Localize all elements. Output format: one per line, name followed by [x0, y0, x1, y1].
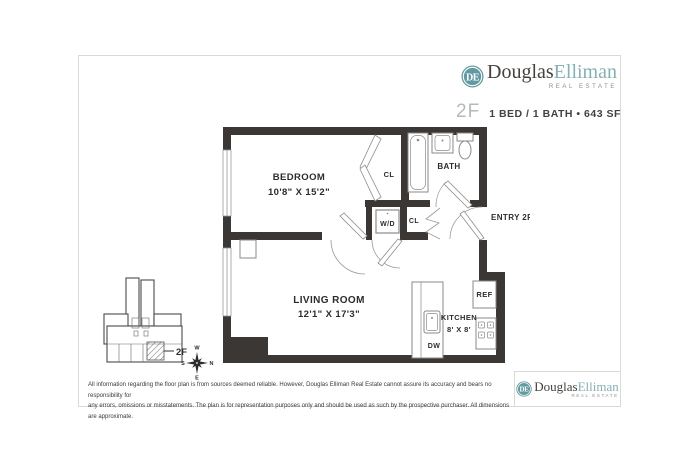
bath-label: BATH — [437, 162, 460, 171]
brand-logo: DE DouglasElliman REAL ESTATE — [452, 62, 617, 90]
fridge-label: REF — [476, 290, 492, 299]
entry-label: ENTRY 2F — [491, 213, 530, 222]
keyplan: 2F W E S N — [95, 272, 230, 380]
bath-sink — [432, 133, 453, 153]
kitchen-sink — [424, 311, 440, 333]
stove — [476, 318, 496, 349]
bedroom-dims: 10'8" X 15'2" — [268, 187, 330, 198]
kitchen-label: KITCHEN — [441, 313, 477, 322]
disclaimer-line-1: All information regarding the floor plan… — [88, 380, 518, 401]
keyplan-unit-hatch — [147, 342, 164, 360]
brand-wordmark: DouglasElliman — [487, 62, 617, 82]
footer-brand-logo: DE DouglasElliman REAL ESTATE — [516, 380, 619, 399]
brand-word2: Elliman — [578, 379, 619, 394]
hall-closet-label: CL — [409, 218, 419, 225]
bathtub — [408, 133, 428, 192]
brand-monogram-icon: DE — [461, 65, 484, 88]
compass-left: S — [181, 361, 185, 367]
bedroom-door-arc — [331, 240, 365, 274]
brand-word1: Douglas — [487, 61, 554, 83]
page: DE DouglasElliman REAL ESTATE 2F 1 BED /… — [0, 0, 700, 466]
bath-door-arc — [436, 182, 446, 207]
brand-word1: Douglas — [534, 379, 577, 394]
bedroom-closet-label: CL — [384, 170, 395, 179]
disclaimer: All information regarding the floor plan… — [88, 380, 518, 422]
bath-door-leaf — [444, 181, 472, 208]
entry-door-leaf — [460, 211, 484, 240]
footer-logo-box: DE DouglasElliman REAL ESTATE — [514, 371, 621, 407]
monogram-letters: DE — [520, 386, 530, 394]
livingroom-dims: 12'1" X 17'3" — [298, 309, 360, 320]
compass-right: N — [210, 361, 214, 367]
wd-door-leaf — [378, 239, 402, 266]
keyplan-unit-label: 2F — [176, 347, 187, 358]
keyplan-building — [104, 278, 182, 362]
bedroom-door-leaf — [340, 213, 367, 239]
unit-summary: 1 BED / 1 BATH • 643 SF — [489, 108, 621, 120]
brand-tagline: REAL ESTATE — [534, 394, 619, 399]
column-enclosure — [240, 240, 256, 258]
monogram-letters: DE — [466, 72, 480, 83]
kitchen-dims: 8' X 8' — [447, 325, 471, 334]
closet-door-leaf — [360, 135, 381, 171]
closet-door-leaf — [360, 165, 381, 201]
brand-word2: Elliman — [554, 61, 617, 83]
brand-monogram-icon: DE — [516, 381, 532, 397]
bedroom-window — [223, 150, 231, 216]
brand-tagline: REAL ESTATE — [487, 84, 617, 90]
bifold-door — [426, 208, 440, 239]
dishwasher-label: DW — [428, 343, 440, 350]
disclaimer-line-2: any errors, omissions or misstatements. … — [88, 401, 518, 422]
bedroom-label: BEDROOM — [273, 172, 325, 183]
wd-label: W/D — [380, 221, 395, 228]
brand-wordmark: DouglasElliman — [534, 380, 619, 393]
toilet — [457, 133, 473, 159]
floorplan: BEDROOM 10'8" X 15'2" CL BATH W/D CL ENT… — [215, 120, 530, 370]
compass-top: W — [194, 346, 200, 352]
livingroom-label: LIVING ROOM — [293, 295, 365, 306]
